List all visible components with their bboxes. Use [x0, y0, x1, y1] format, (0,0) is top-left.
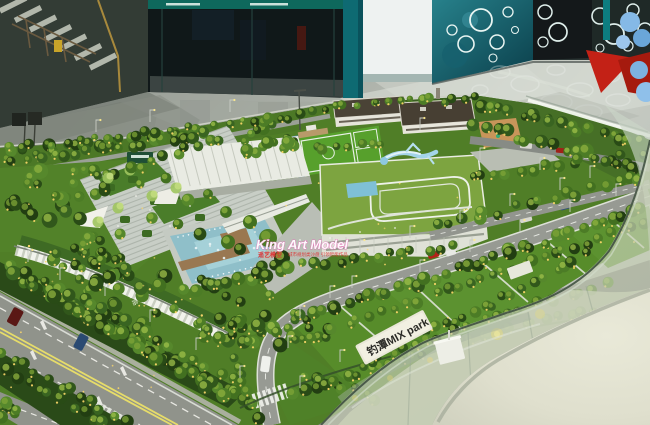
- svg-text:城市规划类沙盘 引领智能作品: 城市规划类沙盘 引领智能作品: [288, 251, 348, 258]
- svg-text:King Art Model: King Art Model: [256, 237, 348, 252]
- svg-text:遥艺模型: 遥艺模型: [258, 251, 282, 259]
